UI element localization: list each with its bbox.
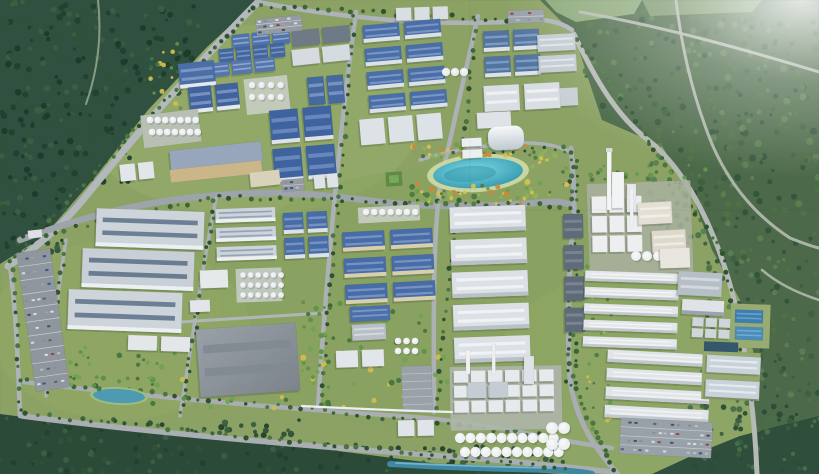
tank-row-center [442, 68, 470, 78]
industrial-park-aerial-image [0, 0, 819, 474]
white-ridge-halls [214, 207, 277, 263]
aerial-render-canvas [0, 0, 819, 474]
logistics-mega-roof [194, 323, 300, 400]
laydown-yard [401, 365, 433, 412]
silo-group-center-a [395, 338, 420, 346]
process-stack-b [492, 344, 496, 374]
treatment-pool-2 [735, 327, 763, 341]
white-warehouse-column [448, 205, 531, 365]
white-building-midband [198, 270, 228, 291]
mega-hall-1 [94, 208, 205, 252]
cream-building [248, 169, 281, 189]
helipad-inner [389, 175, 400, 184]
office-building-east [680, 299, 724, 318]
atmospheric-haze [470, 0, 819, 210]
process-stack-a [466, 350, 470, 374]
scene-layers [0, 0, 819, 474]
mega-hall-2 [80, 248, 195, 293]
parking-central-small [282, 178, 305, 192]
gate-building-west [28, 229, 43, 238]
greenhouse-building [350, 323, 386, 343]
utility-building-small [188, 300, 210, 315]
grid-roof-building [676, 271, 723, 299]
parking-east [619, 418, 713, 459]
substation [690, 317, 731, 341]
cement-aux-building [658, 247, 690, 270]
process-tower [522, 356, 534, 386]
silo-pad-west [140, 109, 202, 149]
east-warehouses-upper [581, 270, 679, 351]
mega-hall-3 [66, 289, 183, 335]
treatment-pool-1 [735, 310, 763, 324]
silo-group-center-b [395, 348, 420, 356]
blue-hall-small-south [348, 305, 390, 324]
